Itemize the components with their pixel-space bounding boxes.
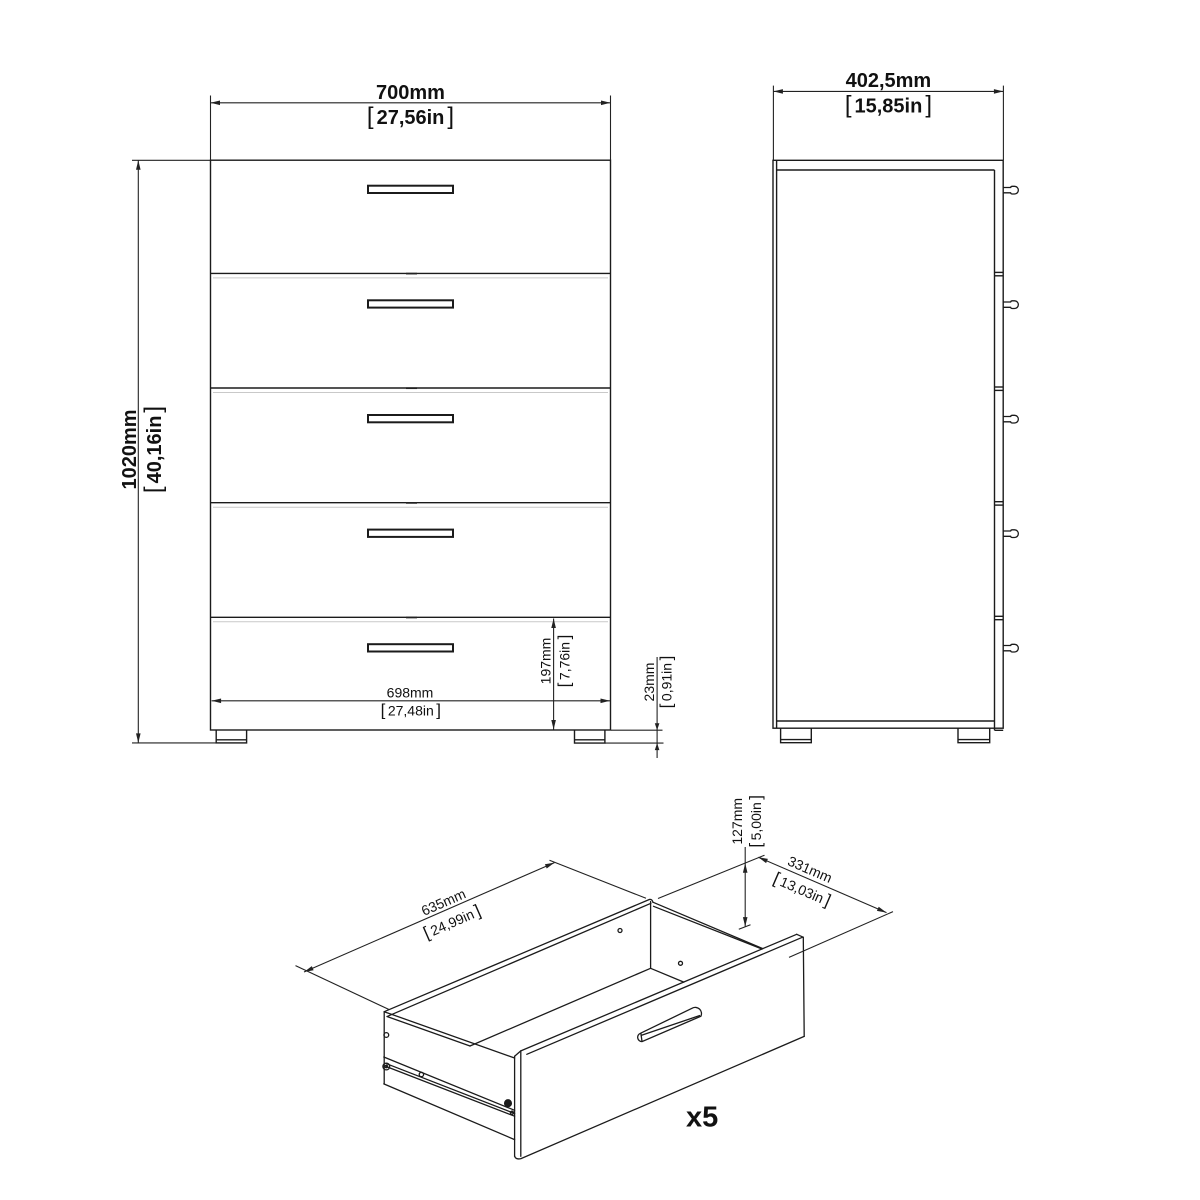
svg-text:[27,48in]: [27,48in]: [381, 700, 441, 719]
svg-text:402,5mm: 402,5mm: [846, 70, 932, 92]
svg-text:[40,16in]: [40,16in]: [140, 406, 167, 493]
svg-text:[5,00in]: [5,00in]: [746, 795, 765, 848]
svg-text:698mm: 698mm: [387, 685, 434, 701]
svg-text:[7,76in]: [7,76in]: [555, 635, 574, 688]
svg-text:197mm: 197mm: [538, 638, 554, 685]
svg-text:[15,85in]: [15,85in]: [845, 92, 932, 119]
svg-text:127mm: 127mm: [729, 798, 745, 845]
svg-text:x5: x5: [686, 1101, 718, 1133]
svg-text:1020mm: 1020mm: [119, 409, 141, 489]
svg-text:700mm: 700mm: [376, 82, 445, 104]
svg-text:[27,56in]: [27,56in]: [367, 103, 454, 130]
svg-text:23mm: 23mm: [641, 663, 657, 702]
svg-text:[0,91in]: [0,91in]: [656, 656, 675, 709]
